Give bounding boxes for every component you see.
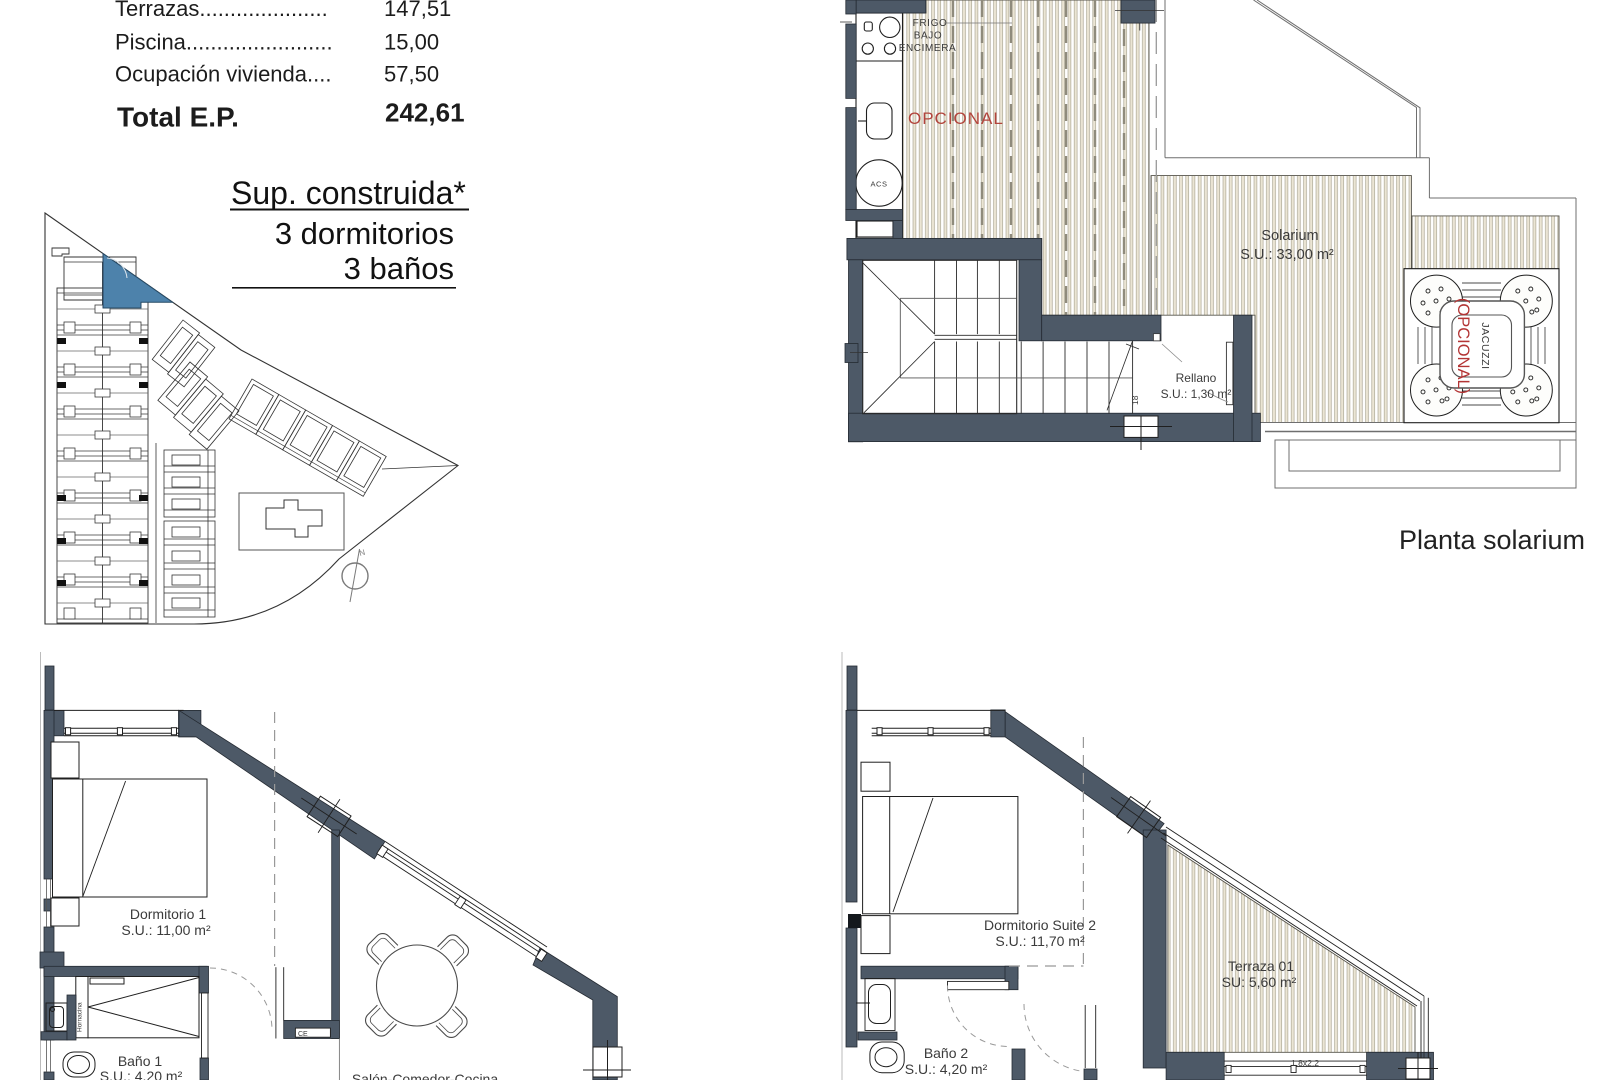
svg-text:Salón-Comedor-Cocina: Salón-Comedor-Cocina <box>352 1071 499 1080</box>
svg-text:242,61: 242,61 <box>385 98 465 128</box>
svg-text:147,51: 147,51 <box>384 0 451 21</box>
svg-text:Hornacina: Hornacina <box>77 1002 84 1032</box>
svg-text:BAJO: BAJO <box>914 31 943 42</box>
svg-text:ENCIMERA: ENCIMERA <box>899 43 957 54</box>
svg-text:Dormitorio 1: Dormitorio 1 <box>130 906 206 922</box>
svg-text:S.U.: 1,30 m²: S.U.: 1,30 m² <box>1161 387 1232 401</box>
svg-text:SU: 5,60 m²: SU: 5,60 m² <box>1222 974 1297 990</box>
svg-text:ACS: ACS <box>871 180 888 189</box>
svg-text:57,50: 57,50 <box>384 62 439 87</box>
svg-text:Ocupación vivienda....: Ocupación vivienda.... <box>115 62 331 87</box>
svg-text:3 dormitorios: 3 dormitorios <box>275 216 454 251</box>
svg-text:FRIGO: FRIGO <box>913 18 948 29</box>
svg-text:Sup. construida*: Sup. construida* <box>231 175 466 211</box>
svg-text:CE: CE <box>298 1031 308 1038</box>
svg-text:Planta solarium: Planta solarium <box>1399 525 1585 555</box>
svg-text:Rellano: Rellano <box>1176 371 1217 385</box>
svg-text:Baño 1: Baño 1 <box>118 1053 163 1069</box>
svg-text:Dormitorio Suite 2: Dormitorio Suite 2 <box>984 917 1096 933</box>
svg-text:18: 18 <box>1130 395 1140 405</box>
svg-text:JACUZZI: JACUZZI <box>1479 322 1491 369</box>
svg-text:S.U.: 33,00 m²: S.U.: 33,00 m² <box>1240 247 1334 263</box>
svg-text:S.U.: 4,20 m²: S.U.: 4,20 m² <box>100 1068 183 1080</box>
svg-text:S.U.: 4,20 m²: S.U.: 4,20 m² <box>905 1061 988 1077</box>
svg-text:Terrazas.....................: Terrazas..................... <box>115 0 328 21</box>
svg-text:Baño 2: Baño 2 <box>924 1045 969 1061</box>
svg-text:3 baños: 3 baños <box>344 251 454 286</box>
svg-text:Piscina.......................: Piscina........................ <box>115 30 333 55</box>
svg-text:Total E.P.: Total E.P. <box>117 102 239 133</box>
svg-text:Solarium: Solarium <box>1261 228 1318 244</box>
svg-text:S.U.: 11,70 m²: S.U.: 11,70 m² <box>995 933 1085 949</box>
svg-text:OPCIONAL: OPCIONAL <box>908 109 1004 128</box>
svg-text:(OPCIONAL): (OPCIONAL) <box>1454 298 1472 394</box>
svg-text:1,8x2,2: 1,8x2,2 <box>1291 1058 1319 1068</box>
svg-text:15,00: 15,00 <box>384 30 439 55</box>
svg-text:Terraza 01: Terraza 01 <box>1228 958 1294 974</box>
svg-text:S.U.: 11,00 m²: S.U.: 11,00 m² <box>121 922 211 938</box>
